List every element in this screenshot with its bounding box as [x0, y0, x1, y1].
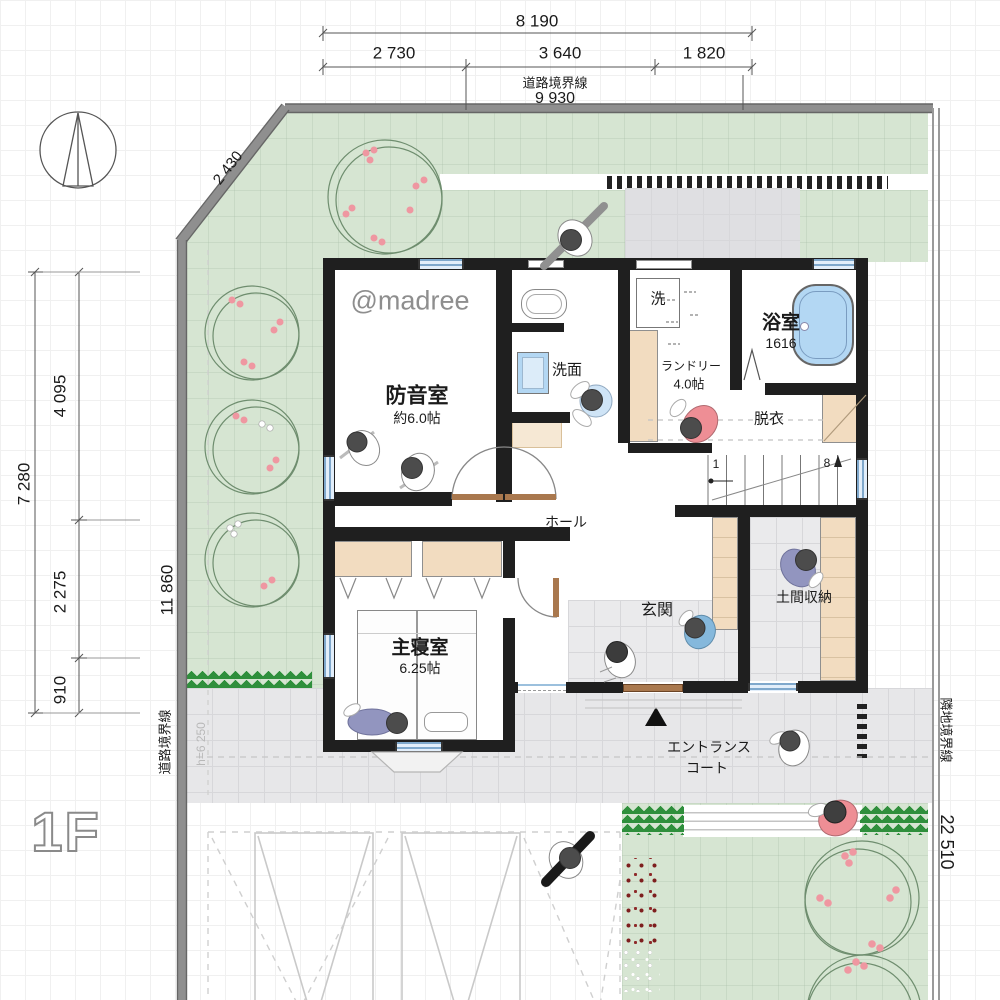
wall: [798, 681, 868, 693]
label-entrance-court-2: コート: [686, 761, 728, 775]
pillow: [424, 712, 468, 732]
wall: [512, 323, 564, 332]
dim-top-boundary-label: 道路境界線: [522, 77, 587, 90]
dim-left-total: 7 280: [16, 463, 33, 506]
hedge-row-left: [186, 670, 312, 688]
laundry-cabinet: [628, 330, 658, 442]
window: [812, 259, 856, 269]
bedroom-closet: [332, 541, 412, 577]
wall: [335, 492, 452, 506]
vanity-sink: [517, 352, 549, 394]
wall: [738, 517, 750, 683]
wall: [503, 682, 518, 693]
wall: [730, 268, 742, 390]
person-figure: [543, 836, 590, 885]
dim-left-seg: 910: [52, 676, 69, 704]
wall-soundproof-double: [496, 258, 512, 502]
washroom-mat: [512, 420, 562, 448]
window: [395, 742, 443, 751]
room-label-bedroom: 主寝室: [391, 639, 448, 658]
dim-left-seg: 4 095: [52, 375, 69, 418]
entrance-marker-icon: [645, 707, 667, 726]
room-label-washer: 洗: [650, 292, 665, 307]
dim-top-seg: 1 820: [683, 45, 726, 62]
stair-number-start: 1: [713, 458, 720, 470]
dim-right-site: 22 510: [938, 814, 956, 869]
bedroom-closet: [422, 541, 502, 577]
wall: [503, 618, 515, 682]
deck: [625, 188, 800, 262]
room-label-laundry: ランドリー: [661, 360, 721, 372]
flower-cluster-white: [620, 946, 660, 992]
watermark: @madree: [351, 288, 470, 315]
window-dashed: [518, 684, 566, 691]
room-label-hall: ホール: [545, 515, 587, 529]
hall-closet: [712, 517, 738, 630]
label-entrance-court-1: エントランス: [667, 740, 751, 754]
bathtub: [792, 284, 854, 366]
flower-cluster-red: [622, 858, 660, 948]
wall: [628, 443, 712, 453]
wall: [675, 505, 856, 517]
hedge-block-se: [860, 805, 928, 835]
wall: [512, 412, 570, 423]
window: [857, 458, 867, 500]
room-label-dressing: 脱衣: [754, 412, 784, 427]
wall: [618, 268, 630, 443]
entrance-door: [623, 684, 683, 692]
toilet: [521, 289, 567, 319]
entrance-court: [186, 688, 933, 803]
room-label-soundproof: 防音室: [386, 386, 449, 407]
driveway-parking-marks: [208, 832, 620, 1000]
room-label-bath: 浴室: [762, 314, 800, 333]
window: [748, 683, 798, 691]
room-size-laundry: 4.0帖: [673, 378, 704, 391]
dim-left-seg: 2 275: [52, 571, 69, 614]
north-compass-icon: [40, 112, 116, 188]
drain-grating: [857, 704, 867, 758]
wall: [323, 258, 868, 270]
window: [418, 259, 464, 269]
label-right-boundary: 隣地境界線: [940, 697, 953, 762]
label-left-boundary: 道路境界線: [159, 709, 172, 774]
room-size-soundproof: 約6.0帖: [393, 411, 440, 425]
room-label-washroom: 洗面: [552, 363, 582, 378]
dim-top-seg: 3 640: [539, 45, 582, 62]
window: [324, 633, 334, 679]
wall: [503, 541, 515, 578]
window: [528, 260, 564, 268]
window: [324, 455, 334, 501]
window: [636, 260, 692, 269]
wall: [566, 682, 623, 693]
dim-left-site: 11 860: [159, 565, 176, 616]
stair-number-end: 8: [824, 457, 831, 469]
floor-plan-canvas: @madree 防音室 約6.0帖 洗面 洗 ランドリー 4.0帖 浴室 161…: [0, 0, 1000, 1000]
dim-top-seg: 2 730: [373, 45, 416, 62]
wall: [765, 383, 868, 395]
floor-label: 1F: [31, 804, 100, 860]
garden-steps: [683, 805, 862, 837]
room-size-bath: 1616: [765, 336, 796, 350]
room-label-doma: 土間収納: [776, 590, 832, 604]
label-height-note: h=6 250: [195, 722, 207, 766]
wall: [323, 527, 570, 541]
dim-top-boundary-value: 9 930: [535, 91, 575, 107]
room-label-entrance: 玄関: [641, 603, 673, 619]
dim-top-total: 8 190: [516, 13, 559, 30]
room-size-bedroom: 6.25帖: [399, 661, 440, 675]
hedge-block-sw: [622, 805, 684, 835]
